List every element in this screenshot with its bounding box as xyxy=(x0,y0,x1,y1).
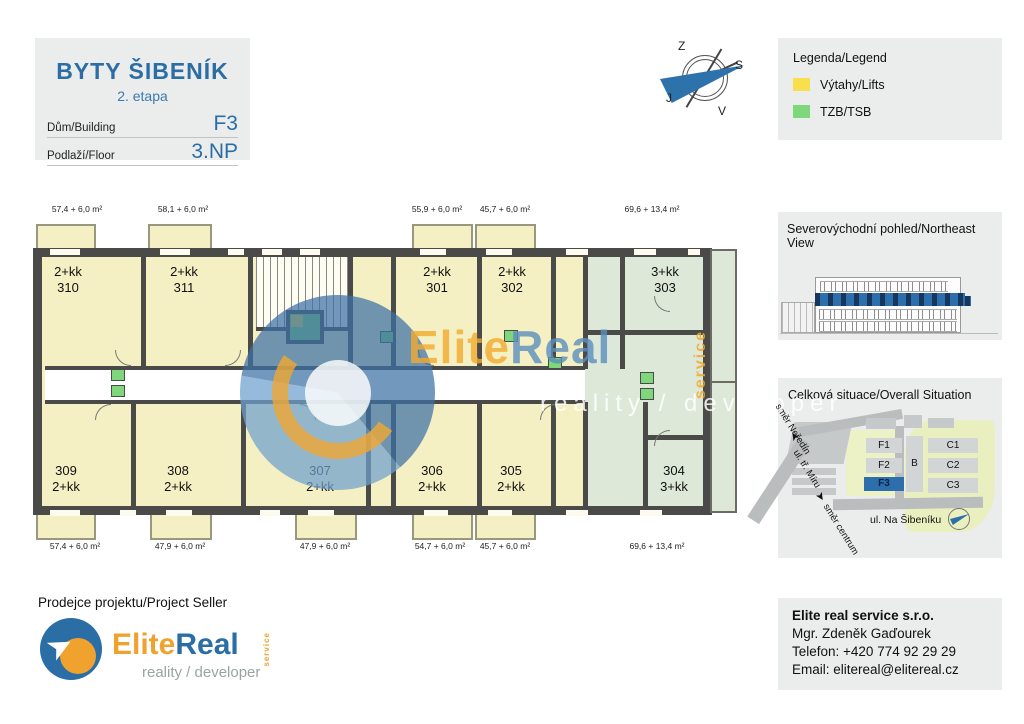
unit-type: 2+kk xyxy=(498,264,526,279)
unit-label-311: 2+kk311 xyxy=(148,264,220,296)
contact-phone: Telefon: +420 774 92 29 29 xyxy=(792,644,992,659)
map-building-C1: C1 xyxy=(928,438,978,453)
elevation-window-row xyxy=(820,281,948,292)
unit-number: 311 xyxy=(174,280,195,295)
logo-service-text: service xyxy=(262,632,271,667)
area-label-311: 58,1 + 6,0 m² xyxy=(128,204,238,214)
unit-type: 2+kk xyxy=(423,264,451,279)
map-building-block xyxy=(904,415,922,428)
tzb-shaft xyxy=(111,369,125,381)
unit-type: 2+kk xyxy=(164,479,192,494)
northeast-view-title: Severovýchodní pohled/Northeast View xyxy=(787,222,1002,250)
unit-type: 2+kk xyxy=(497,479,525,494)
header-box: BYTY ŠIBENÍK 2. etapa Dům/Building F3 Po… xyxy=(35,38,250,160)
legend-item-lifts: Výtahy/Lifts xyxy=(793,78,885,92)
unit-type: 3+kk xyxy=(651,264,679,279)
area-label-303: 69,6 + 13,4 m² xyxy=(597,204,707,214)
legend-box: Legenda/Legend Výtahy/Lifts TZB/TSB xyxy=(778,38,1002,140)
balcony xyxy=(150,513,212,540)
unit-type: 2+kk xyxy=(170,264,198,279)
area-label-304: 69,6 + 13,4 m² xyxy=(602,541,712,551)
unit-number: 302 xyxy=(501,280,523,295)
tzb-shaft xyxy=(640,372,654,384)
area-label-310: 57,4 + 6,0 m² xyxy=(22,204,132,214)
area-label-309: 57,4 + 6,0 m² xyxy=(20,541,130,551)
legend-item-tzb: TZB/TSB xyxy=(793,105,871,119)
area-label-305: 45,7 + 6,0 m² xyxy=(450,541,560,551)
elevation-ground-line xyxy=(780,333,998,334)
floor-value: 3.NP xyxy=(191,140,238,164)
building-row: Dům/Building F3 xyxy=(47,110,238,138)
mini-compass-icon xyxy=(948,508,970,530)
map-building-C3: C3 xyxy=(928,478,978,493)
contact-person: Mgr. Zdeněk Gaďourek xyxy=(792,626,992,641)
tzb-shaft xyxy=(111,385,125,397)
map-building-B: B xyxy=(906,436,923,492)
elevation-window-row xyxy=(819,309,957,320)
unit-number: 303 xyxy=(654,280,676,295)
legend-title: Legenda/Legend xyxy=(793,51,887,65)
contact-email: Email: elitereal@elitereal.cz xyxy=(792,662,992,677)
unit-label-305: 3052+kk xyxy=(475,463,547,495)
page-subtitle: 2. etapa xyxy=(35,88,250,104)
tzb-shaft xyxy=(640,388,654,400)
tzb-shaft xyxy=(548,357,562,369)
compass-south-label: J xyxy=(666,91,672,105)
compass-rose-icon: Z S J V xyxy=(650,35,765,120)
unit-label-309: 3092+kk xyxy=(30,463,102,495)
building-label: Dům/Building xyxy=(47,122,115,134)
unit-type: 2+kk xyxy=(54,264,82,279)
elitereal-logo-icon: ➤ xyxy=(40,618,104,682)
tzb-shaft xyxy=(380,331,394,343)
unit-number: 301 xyxy=(426,280,448,295)
map-building-block xyxy=(928,418,954,428)
elitereal-logo-text: EliteReal xyxy=(112,628,239,662)
unit-number: 308 xyxy=(167,463,189,478)
logo-elite-text: Elite xyxy=(112,628,175,661)
unit-label-304: 3043+kk xyxy=(638,463,710,495)
northeast-view-box: Severovýchodní pohled/Northeast View xyxy=(778,212,1002,340)
tzb-shaft xyxy=(504,330,518,342)
floor-label: Podlaží/Floor xyxy=(47,150,115,162)
area-label-307: 47,9 + 6,0 m² xyxy=(270,541,380,551)
unit-label-308: 3082+kk xyxy=(142,463,214,495)
unit-label-310: 2+kk310 xyxy=(32,264,104,296)
street-label-sibeniku: ul. Na Šibeníku xyxy=(870,514,941,526)
logo-tagline: reality / developer xyxy=(142,664,260,681)
elevation-floor-highlight-step xyxy=(965,296,971,306)
corridor xyxy=(45,366,585,404)
lift-icon xyxy=(291,315,303,327)
area-label-308: 47,9 + 6,0 m² xyxy=(125,541,235,551)
terrace-divider xyxy=(710,381,737,383)
map-building-C2: C2 xyxy=(928,458,978,473)
situation-box: Celková situace/Overall Situation F1 F2 … xyxy=(778,378,1002,558)
map-building-F3-highlighted: F3 xyxy=(864,477,904,491)
street-label-centrum: směr centrum xyxy=(821,502,861,557)
map-building-F2: F2 xyxy=(866,458,902,473)
balcony xyxy=(475,513,536,540)
situation-title: Celková situace/Overall Situation xyxy=(788,388,971,402)
unit-number: 306 xyxy=(421,463,443,478)
lift-shaft xyxy=(286,310,324,344)
unit-label-306: 3062+kk xyxy=(396,463,468,495)
unit-label-302: 2+kk302 xyxy=(476,264,548,296)
unit-label-303: 3+kk303 xyxy=(629,264,701,296)
unit-number: 307 xyxy=(309,463,331,478)
unit-type: 2+kk xyxy=(52,479,80,494)
unit-label-301: 2+kk301 xyxy=(401,264,473,296)
balcony xyxy=(36,224,96,250)
logo-real-text: Real xyxy=(175,628,238,661)
legend-item-label: Výtahy/Lifts xyxy=(820,78,885,92)
unit-number: 304 xyxy=(663,463,685,478)
elevation-window-row xyxy=(819,321,957,332)
unit-number: 310 xyxy=(57,280,79,295)
compass-north-label: S xyxy=(735,58,743,72)
unit-number: 309 xyxy=(55,463,77,478)
map-building-block xyxy=(866,418,896,429)
balcony xyxy=(412,224,473,250)
legend-item-label: TZB/TSB xyxy=(820,105,871,119)
unit-label-307: 3072+kk xyxy=(284,463,356,495)
seller-label: Prodejce projektu/Project Seller xyxy=(38,595,227,610)
unit-number: 305 xyxy=(500,463,522,478)
unit-type: 2+kk xyxy=(418,479,446,494)
lift-color-swatch-icon xyxy=(793,78,810,91)
tzb-color-swatch-icon xyxy=(793,105,810,118)
balcony xyxy=(295,513,357,540)
elevation-floor-highlight xyxy=(815,293,965,306)
balcony xyxy=(475,224,536,250)
page-title: BYTY ŠIBENÍK xyxy=(35,58,250,85)
balcony xyxy=(36,513,96,540)
map-building-F1: F1 xyxy=(866,438,902,453)
floorplan-sheet: BYTY ŠIBENÍK 2. etapa Dům/Building F3 Po… xyxy=(0,0,1024,724)
compass-east-label: V xyxy=(718,104,726,118)
balcony xyxy=(148,224,212,250)
elevation-annex xyxy=(781,302,815,333)
contact-box: Elite real service s.r.o. Mgr. Zdeněk Ga… xyxy=(778,598,1002,690)
unit-type: 2+kk xyxy=(306,479,334,494)
contact-company: Elite real service s.r.o. xyxy=(792,608,992,623)
unit-type: 3+kk xyxy=(660,479,688,494)
building-value: F3 xyxy=(213,112,238,136)
area-label-302: 45,7 + 6,0 m² xyxy=(450,204,560,214)
compass-west-label: Z xyxy=(678,39,685,53)
floor-row: Podlaží/Floor 3.NP xyxy=(47,138,238,166)
balcony xyxy=(412,513,473,540)
